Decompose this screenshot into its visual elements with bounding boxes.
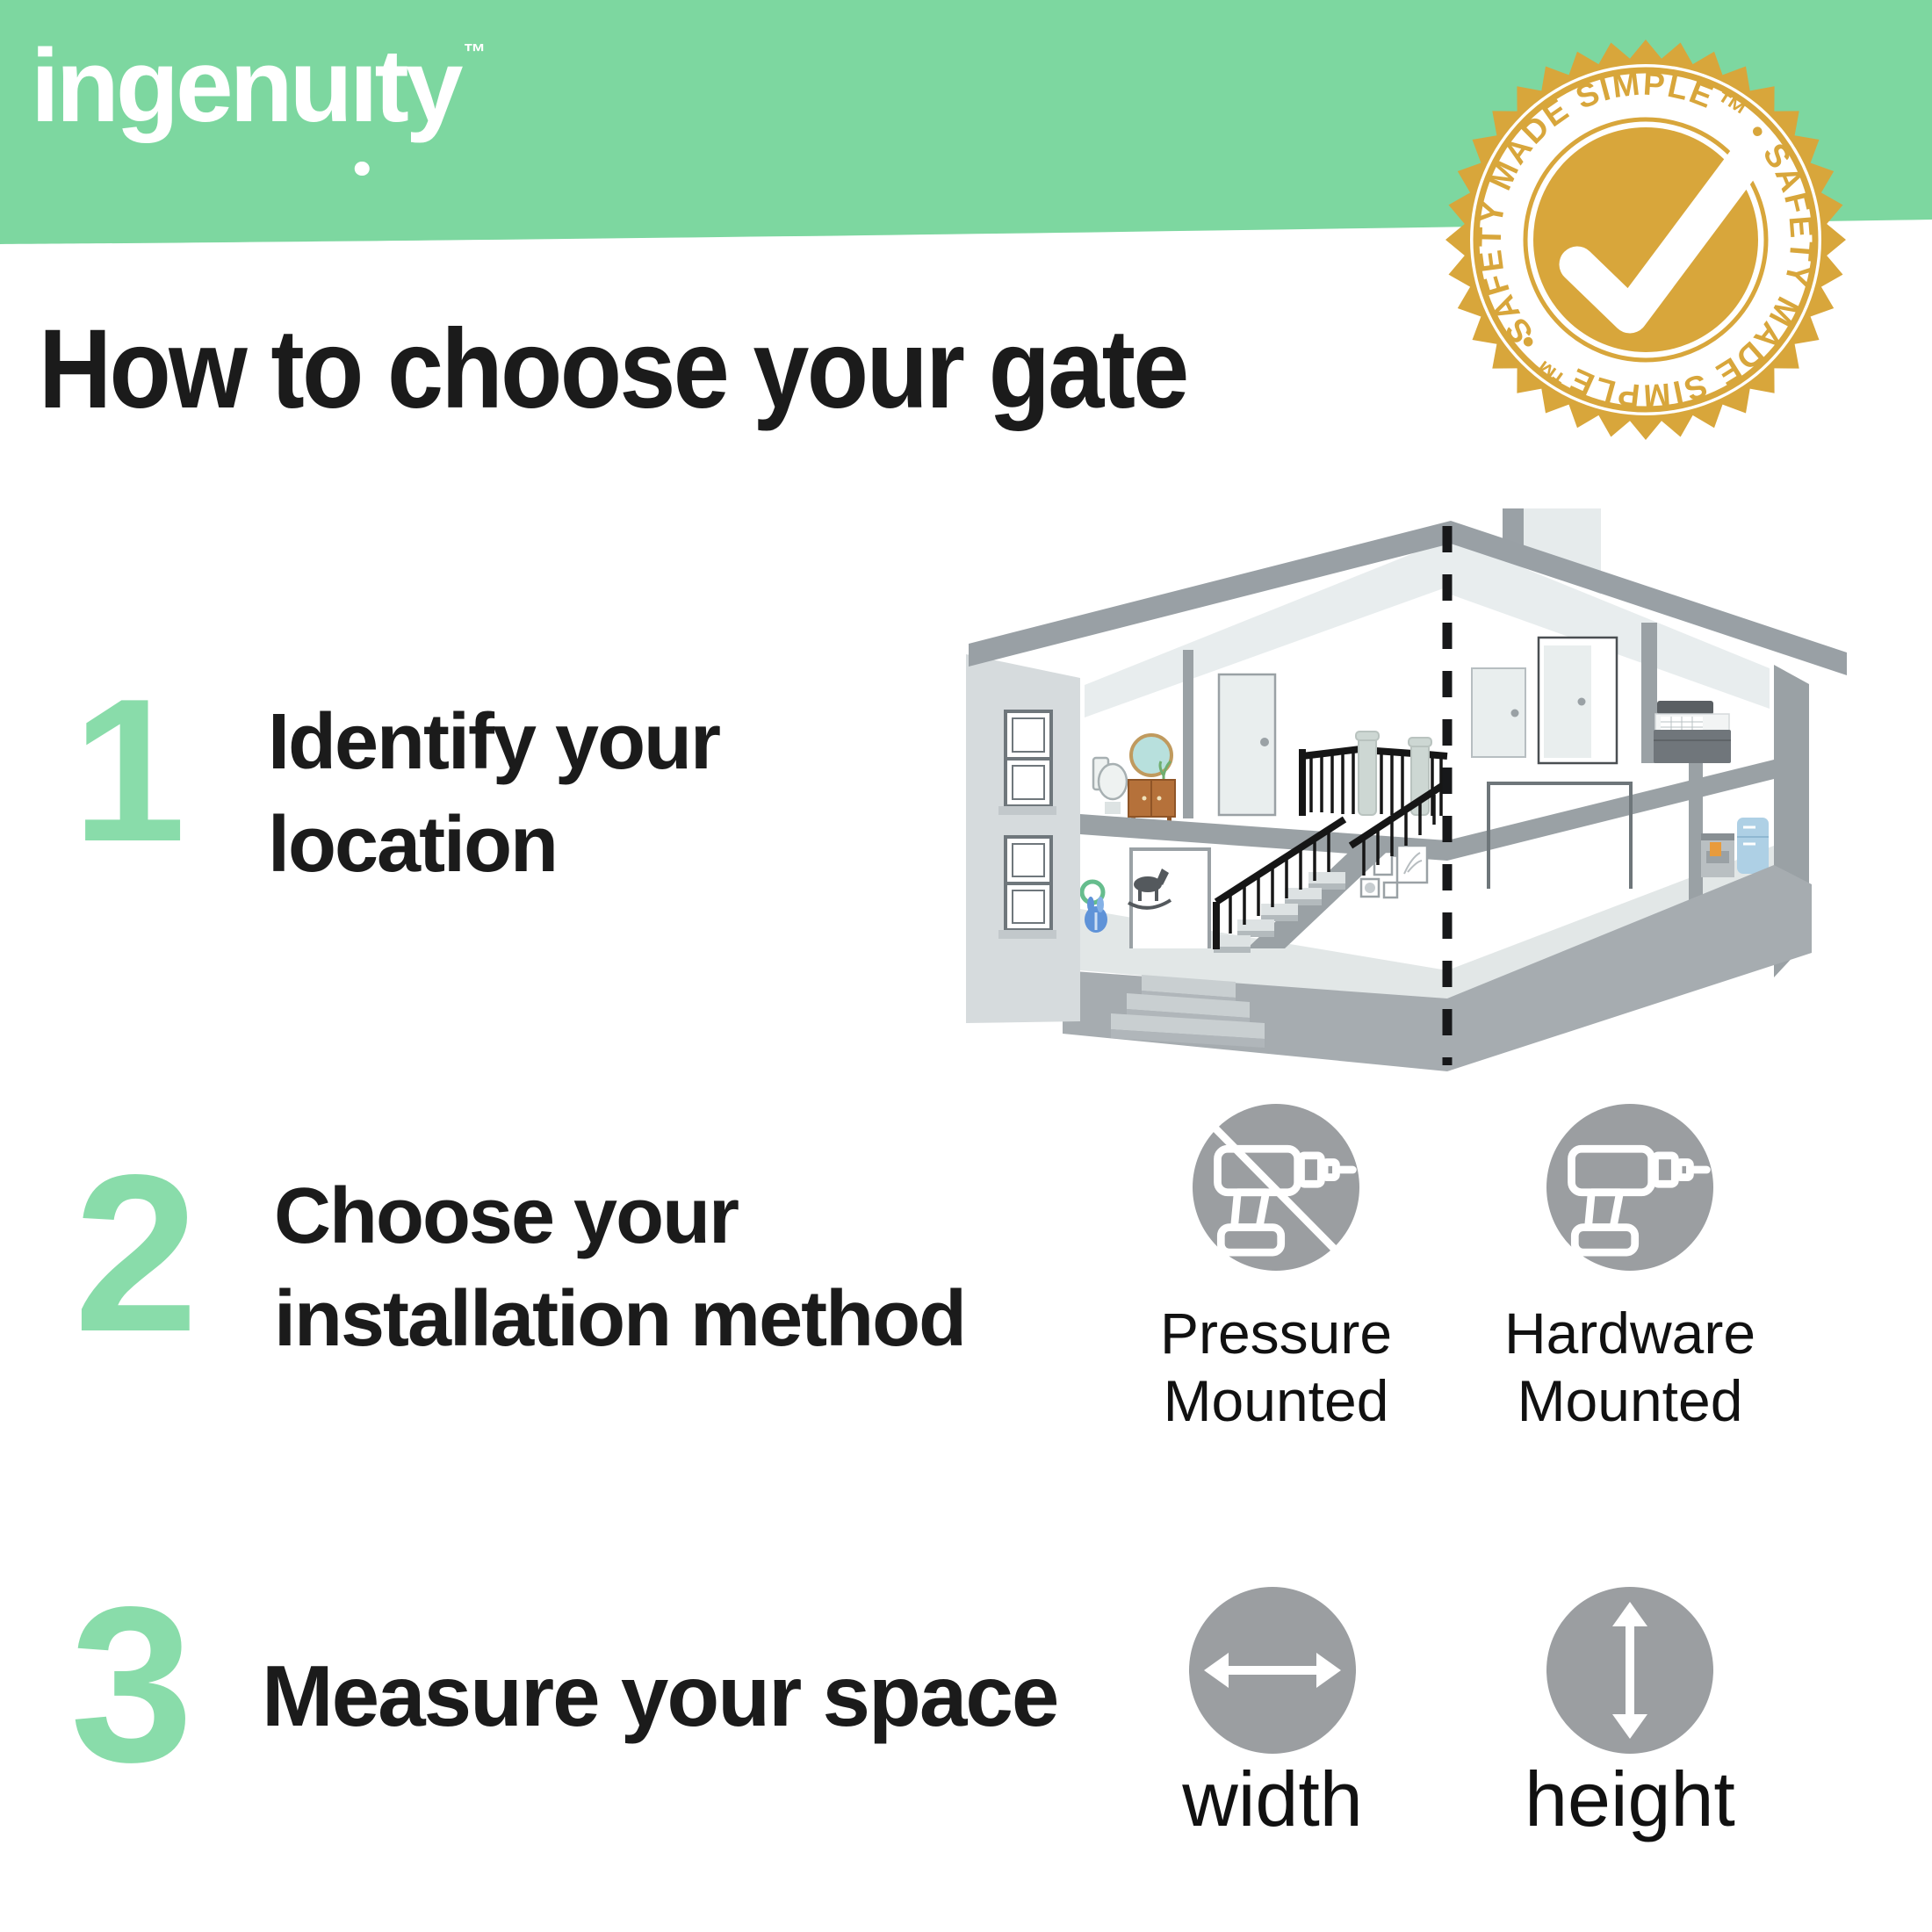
- safety-made-simple-badge: SAFETY MADE SIMPLE™ • SAFETY MADE SIMPLE…: [1443, 37, 1849, 443]
- horizontal-double-arrow-icon: [1189, 1587, 1356, 1754]
- fridge: [1737, 818, 1769, 874]
- open-door-with-frame: [1539, 638, 1617, 763]
- drill-icon: [1546, 1104, 1713, 1271]
- window-upper: [998, 711, 1056, 815]
- hardware-mounted-label: HardwareMounted: [1445, 1300, 1814, 1435]
- height-label: height: [1445, 1755, 1814, 1844]
- vertical-double-arrow-icon: [1546, 1587, 1713, 1754]
- step-2-text: Choose yourinstallation method: [274, 1165, 965, 1371]
- step-3-number: 3: [57, 1575, 206, 1796]
- pressure-mounted-label: PressureMounted: [1092, 1300, 1460, 1435]
- step-2-number: 2: [61, 1142, 211, 1366]
- step-1-number: 1: [54, 669, 204, 873]
- page-title: How to choose your gate: [39, 305, 1187, 434]
- logo-under-dot: [355, 162, 370, 177]
- width-label: width: [1088, 1755, 1457, 1844]
- logo-text-2: ty: [375, 28, 460, 144]
- infographic-root: ingenuıty™ SAFETY MADE SIMPLE™ • SAFETY …: [0, 0, 1932, 1932]
- drill-crossed-icon: [1193, 1104, 1359, 1271]
- logo-text-1: ingenu: [31, 28, 350, 144]
- interior-wall: [1183, 650, 1193, 818]
- logo-dotless-i: ı: [350, 25, 375, 149]
- house-cutaway-illustration: [962, 496, 1932, 1080]
- interior-wall: [1689, 763, 1703, 905]
- trademark-symbol: ™: [463, 39, 486, 65]
- brand-logo: ingenuıty™: [31, 25, 486, 149]
- stove: [1701, 833, 1734, 877]
- step-3-text: Measure your space: [262, 1645, 1057, 1748]
- step-1-text: Identify yourlocation: [268, 691, 719, 897]
- window-lower: [998, 837, 1056, 939]
- doorway: [1131, 849, 1209, 948]
